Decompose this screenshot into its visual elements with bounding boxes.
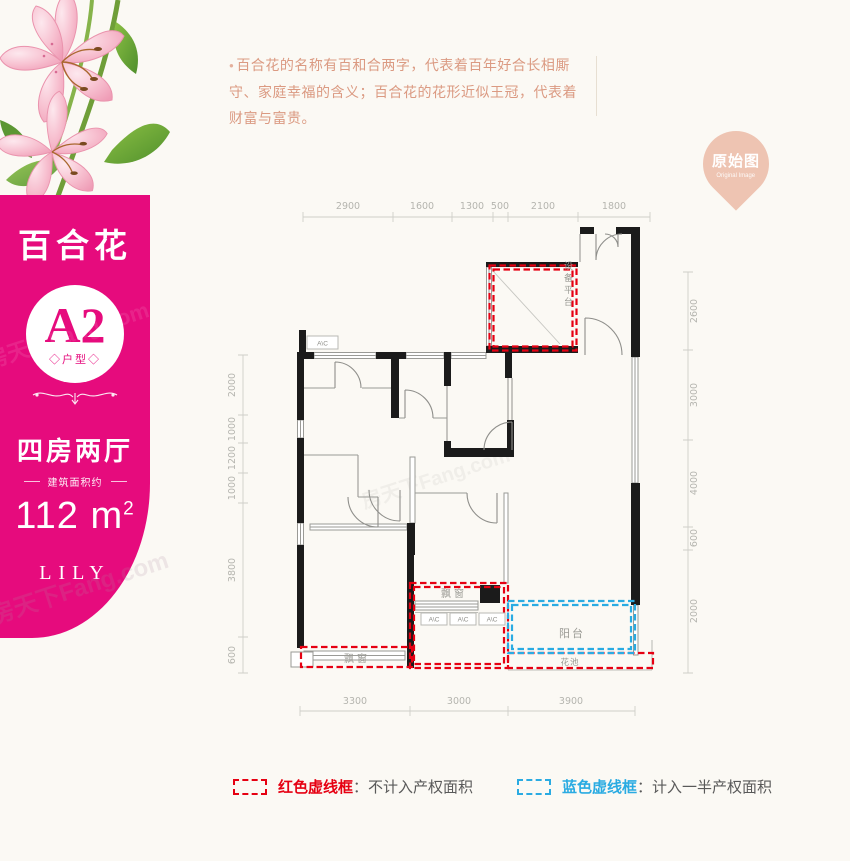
dim-right-3: 4000 — [689, 471, 700, 495]
dim-top-1: 2900 — [336, 201, 360, 212]
dim-right-1: 2600 — [689, 299, 700, 323]
dim-right-5: 2000 — [689, 599, 700, 623]
area-note: 建筑面积约 — [48, 474, 103, 489]
label-flower-bed: 花池 — [560, 657, 579, 667]
area-value: 112 — [15, 495, 79, 537]
area-figure: 112 m2 — [0, 495, 150, 538]
unit-type-label: ◇户型◇ — [49, 351, 101, 367]
dim-top-5: 2100 — [531, 201, 555, 212]
label-ac-2: A\C — [429, 617, 440, 624]
original-image-badge: 原始图 Original Image — [689, 117, 782, 210]
lily-artwork — [0, 0, 170, 196]
label-bay-window-left: 飘窗 — [344, 652, 370, 665]
label-balcony: 阳台 — [559, 626, 585, 640]
dim-left-5: 3800 — [227, 558, 238, 582]
dim-bottom-1: 3300 — [343, 696, 367, 707]
dim-bottom-2: 3000 — [447, 696, 471, 707]
dim-left-6: 600 — [227, 646, 238, 664]
lily-flower-illustration — [0, 0, 170, 196]
sidebar-panel: 百合花 A2 ◇户型◇ 四房两厅 建筑面积约 112 m2 LILY — [0, 195, 150, 638]
unit-code-circle: A2 ◇户型◇ — [26, 285, 124, 383]
red-dashed-box-icon — [233, 779, 267, 795]
legend-red-item: 红色虚线框 ：不计入产权面积 — [233, 776, 473, 797]
dim-right-4: 600 — [689, 529, 700, 547]
badge-content: 原始图 Original Image — [703, 131, 769, 197]
legend-red-desc: ：不计入产权面积 — [353, 776, 473, 797]
legend-blue-desc: ：计入一半产权面积 — [637, 776, 772, 797]
description-text: 百合花的名称有百和合两字，代表着百年好合长相厮守、家庭幸福的含义；百合花的花形近… — [229, 57, 577, 126]
label-bay-window-mid: 飘窗 — [441, 587, 467, 600]
badge-sublabel: Original Image — [717, 172, 756, 178]
dim-right-2: 3000 — [689, 383, 700, 407]
label-ac-4: A\C — [487, 617, 498, 624]
bullet-icon: ● — [229, 61, 234, 70]
dim-left-2: 1000 — [227, 417, 238, 441]
description-paragraph: ●百合花的名称有百和合两字，代表着百年好合长相厮守、家庭幸福的含义；百合花的花形… — [229, 52, 591, 131]
area-note-row: 建筑面积约 — [0, 474, 150, 489]
dimension-lines — [238, 212, 693, 716]
label-ac-1: A\C — [317, 341, 328, 348]
legend-red-label: 红色虚线框 — [278, 776, 353, 797]
dash-right — [111, 481, 127, 482]
label-ac-3: A\C — [458, 617, 469, 624]
dash-left — [24, 481, 40, 482]
floorplan-drawing: 2900 1600 1300 500 2100 1800 3300 3000 3… — [220, 190, 700, 720]
dim-top-2: 1600 — [410, 201, 434, 212]
legend-blue-label: 蓝色虚线框 — [562, 776, 637, 797]
dim-top-4: 500 — [491, 201, 509, 212]
unit-code: A2 — [44, 301, 105, 349]
dim-left-1: 2000 — [227, 373, 238, 397]
room-count: 四房两厅 — [0, 431, 150, 468]
dim-top-3: 1300 — [460, 201, 484, 212]
description-divider — [596, 56, 597, 116]
legend-blue-item: 蓝色虚线框 ：计入一半产权面积 — [517, 776, 772, 797]
label-equipment-platform: 设备平台 — [563, 261, 573, 309]
flourish-ornament — [29, 387, 121, 409]
dim-left-3: 1200 — [227, 446, 238, 470]
windows — [291, 267, 638, 667]
blue-dashed-boxes — [508, 601, 635, 653]
door-swings — [335, 234, 622, 527]
area-unit: m — [90, 495, 123, 537]
plan-title: 百合花 — [0, 195, 150, 267]
plan-name-en: LILY — [0, 562, 150, 585]
badge-label: 原始图 — [712, 150, 760, 171]
area-sup: 2 — [123, 498, 135, 519]
ac-unit-boxes — [307, 336, 505, 625]
dim-left-4: 1000 — [227, 476, 238, 500]
dim-bottom-3: 3900 — [559, 696, 583, 707]
dim-top-6: 1800 — [602, 201, 626, 212]
blue-dashed-box-icon — [517, 779, 551, 795]
legend: 红色虚线框 ：不计入产权面积 蓝色虚线框 ：计入一半产权面积 — [233, 776, 772, 797]
